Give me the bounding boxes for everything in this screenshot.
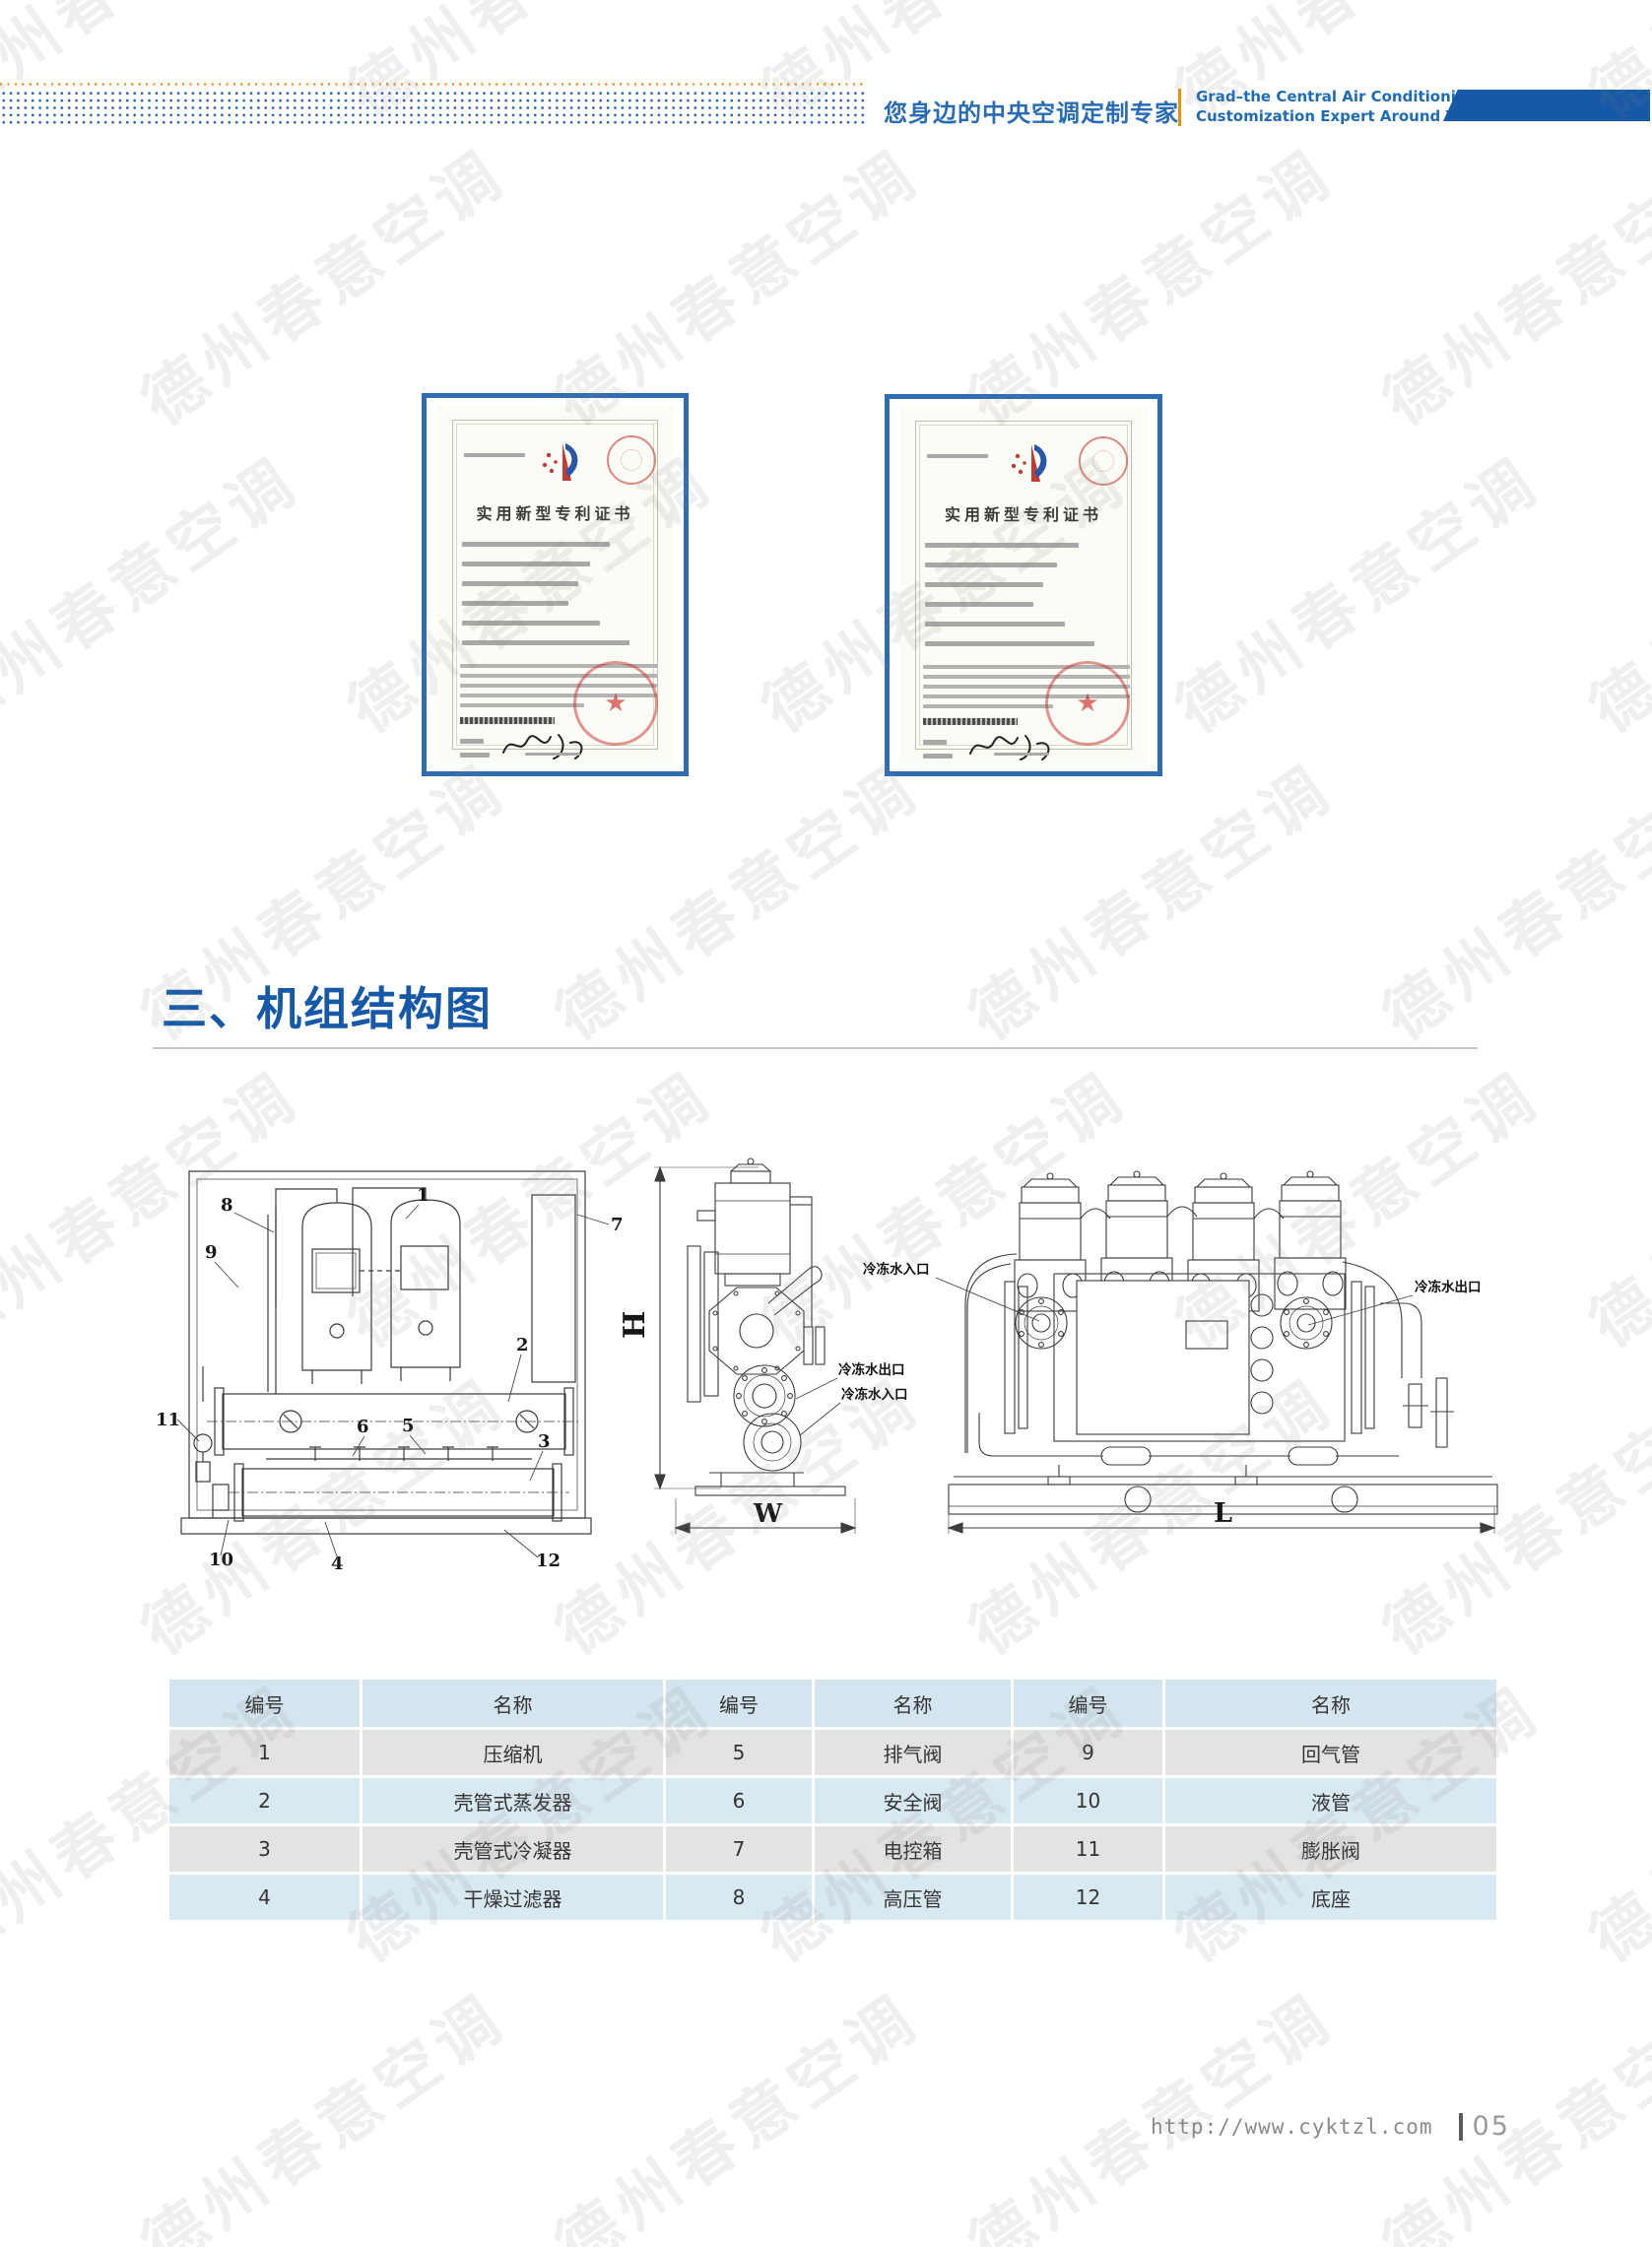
table-cell: 12	[1014, 1875, 1162, 1920]
watermark-text: 德州春意空调	[1362, 124, 1652, 442]
certificate-title: 实用新型专利证书	[899, 501, 1148, 525]
table-cell: 回气管	[1165, 1730, 1496, 1775]
table-cell: 11	[1014, 1826, 1162, 1872]
certificate-field-line	[925, 562, 1057, 567]
table-header-cell: 名称	[815, 1680, 1011, 1727]
table-cell: 底座	[1165, 1875, 1496, 1920]
watermark-text: 德州春意空调	[949, 739, 1350, 1057]
table-cell: 壳管式蒸发器	[363, 1778, 663, 1823]
certificate-barcode	[460, 717, 555, 724]
certificate-field-line	[462, 640, 629, 645]
certificate-field-line	[462, 562, 590, 566]
header-divider	[1178, 89, 1181, 126]
certificate-field-line	[925, 622, 1065, 627]
certificate-field-line	[925, 543, 1079, 548]
table-cell: 1	[169, 1730, 360, 1775]
table-cell: 压缩机	[363, 1730, 663, 1775]
table-cell: 7	[666, 1826, 812, 1872]
watermark-text: 德州春意空调	[1362, 739, 1652, 1057]
table-cell: 8	[666, 1875, 812, 1920]
unit-structure-diagram: 8 1 7 9 2 11 6 5 3 10 4 12	[118, 1156, 1517, 1581]
small-red-seal-icon	[607, 435, 656, 485]
header-tagline-zh: 您身边的中央空调定制专家	[884, 94, 1179, 128]
table-cell: 4	[169, 1875, 360, 1920]
page-footer: http://www.cyktzl.com 05	[1151, 2111, 1510, 2142]
certificate-paper: 实用新型专利证书 ★	[436, 406, 674, 763]
table-cell: 电控箱	[815, 1826, 1011, 1872]
watermark-text: 德州春意空调	[1156, 431, 1556, 750]
callout-9: 9	[205, 1242, 218, 1263]
certificate-field-line	[462, 601, 568, 606]
dimension-l: L	[1214, 1498, 1232, 1529]
side-view-drawing	[949, 1171, 1497, 1534]
label-chilled-water-inlet-side: 冷冻水入口	[863, 1261, 930, 1278]
callout-1: 1	[417, 1185, 430, 1206]
director-name-line	[460, 753, 490, 758]
table-cell: 干燥过滤器	[363, 1875, 663, 1920]
table-header-cell: 名称	[363, 1680, 663, 1727]
table-cell: 液管	[1165, 1778, 1496, 1823]
section-title-rule	[153, 1047, 1478, 1049]
table-cell: 膨胀阀	[1165, 1826, 1496, 1872]
watermark-text: 德州春意空调	[121, 1968, 522, 2247]
label-chilled-water-outlet-side: 冷冻水出口	[1415, 1279, 1482, 1295]
footer-url[interactable]: http://www.cyktzl.com	[1151, 2115, 1433, 2139]
header-orange-dotted-line	[0, 83, 865, 86]
director-name-line	[923, 754, 953, 759]
callout-12: 12	[536, 1551, 561, 1571]
certificate-number-line	[927, 454, 988, 458]
page-number: 05	[1473, 2111, 1510, 2142]
national-red-seal-icon: ★	[573, 661, 658, 746]
label-chilled-water-inlet-front: 冷冻水入口	[841, 1386, 908, 1403]
footer-separator	[1459, 2113, 1463, 2141]
table-cell: 10	[1014, 1778, 1162, 1823]
certificate-field-line	[462, 581, 578, 586]
watermark-text: 德州春意空调	[0, 431, 314, 750]
certificate-field-line	[462, 542, 610, 547]
header-tagline-en: Grad–the Central Air Conditioning Custom…	[1196, 88, 1477, 126]
watermark-text: 德州春意空调	[535, 739, 936, 1057]
certificate-field-line	[925, 641, 1094, 646]
section-title: 三、机组结构图	[162, 973, 493, 1038]
director-label-line	[923, 740, 947, 745]
watermark-text: 德州春意空调	[949, 1968, 1350, 2247]
certificate-title: 实用新型专利证书	[436, 500, 674, 524]
catalog-page: 您身边的中央空调定制专家 Grad–the Central Air Condit…	[0, 0, 1652, 2247]
patent-certificate-left: 实用新型专利证书 ★	[422, 393, 689, 776]
front-view-drawing	[654, 1158, 855, 1534]
watermark-text: 德州春意空调	[1362, 1968, 1652, 2247]
table-cell: 排气阀	[815, 1730, 1011, 1775]
table-cell: 3	[169, 1826, 360, 1872]
watermark-text: 德州春意空调	[1569, 1661, 1652, 1979]
header-tagline-en-line2: Customization Expert Around You	[1196, 107, 1477, 127]
header-blue-band	[1443, 90, 1650, 121]
table-cell: 9	[1014, 1730, 1162, 1775]
certificate-footer-line	[525, 753, 580, 756]
certificate-footer-line	[994, 753, 1049, 756]
callout-3: 3	[538, 1431, 551, 1452]
certificate-paragraph-line	[923, 704, 1053, 708]
watermark-text: 德州春意空调	[1569, 431, 1652, 750]
table-cell: 壳管式冷凝器	[363, 1826, 663, 1872]
director-label-line	[460, 739, 484, 744]
callout-11: 11	[156, 1410, 180, 1430]
table-header-cell: 编号	[169, 1680, 360, 1727]
small-red-seal-icon	[1079, 436, 1128, 486]
left-view-drawing	[181, 1171, 591, 1534]
patent-certificate-right: 实用新型专利证书 ★	[885, 394, 1162, 776]
table-header-cell: 名称	[1165, 1680, 1496, 1727]
callout-6: 6	[357, 1417, 369, 1437]
certificate-field-line	[925, 602, 1033, 607]
table-header-cell: 编号	[1014, 1680, 1162, 1727]
callout-2: 2	[516, 1335, 529, 1355]
certificate-paper: 实用新型专利证书 ★	[899, 407, 1148, 763]
table-header-cell: 编号	[666, 1680, 812, 1727]
table-cell: 高压管	[815, 1875, 1011, 1920]
callout-5: 5	[402, 1416, 415, 1436]
table-cell: 2	[169, 1778, 360, 1823]
header-tagline-en-line1: Grad–the Central Air Conditioning	[1196, 88, 1477, 107]
certificate-field-line	[925, 582, 1043, 587]
director-signature	[964, 728, 1063, 767]
certificate-field-line	[462, 621, 600, 626]
dimension-h: H	[618, 1311, 652, 1339]
watermark-text: 德州春意空调	[1569, 1046, 1652, 1364]
director-signature	[497, 727, 596, 766]
callout-8: 8	[221, 1195, 233, 1216]
certificate-barcode	[923, 718, 1018, 725]
patent-office-logo	[1008, 442, 1053, 484]
certificate-number-line	[464, 453, 525, 457]
label-chilled-water-outlet-front: 冷冻水出口	[838, 1361, 905, 1378]
watermark-text: 德州春意空调	[535, 1968, 936, 2247]
national-red-seal-icon: ★	[1045, 661, 1130, 746]
table-cell: 5	[666, 1730, 812, 1775]
table-cell: 安全阀	[815, 1778, 1011, 1823]
patent-office-logo	[539, 441, 584, 483]
certificate-paragraph-line	[460, 703, 584, 707]
dimension-w: W	[753, 1499, 783, 1529]
callout-7: 7	[611, 1215, 624, 1235]
header-dot-pattern	[0, 90, 865, 126]
table-cell: 6	[666, 1778, 812, 1823]
parts-table: 编号 名称 编号 名称 编号 名称 1 压缩机 5 排气阀 9 回气管 2 壳管…	[169, 1680, 1496, 1920]
